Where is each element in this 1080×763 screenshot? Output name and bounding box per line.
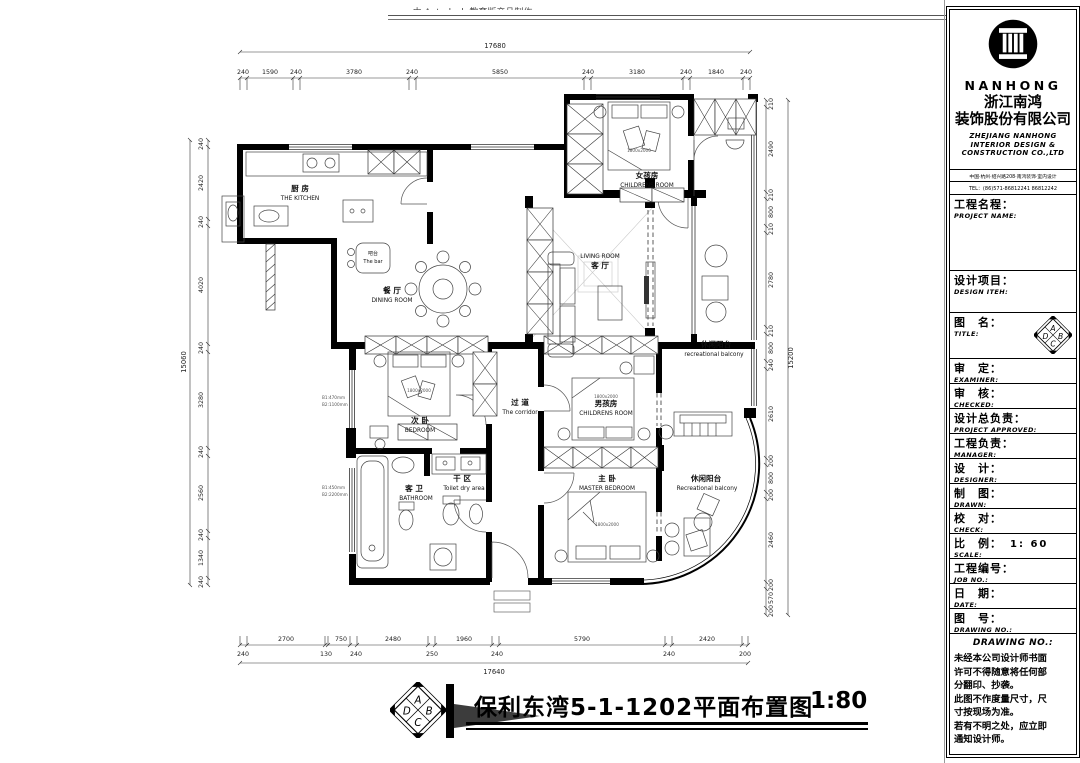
svg-text:B: B: [1058, 332, 1063, 341]
field-check: 校 对：CHECK:: [950, 509, 1076, 534]
field-project-name: 工程名程：PROJECT NAME:: [950, 195, 1076, 271]
dim-right: 210 2490 210 800 210 2780 210 800 240 26…: [764, 98, 795, 617]
drawing-title: 保利东湾5-1-1202平面布置图: [474, 688, 813, 722]
svg-text:240: 240: [680, 69, 692, 76]
drawing-no-notice-block: DRAWING NO.: 未经本公司设计师书面 许可不得随意将任何部 分翻印、抄…: [950, 634, 1076, 754]
svg-text:2420: 2420: [198, 175, 205, 191]
abcd-diamond-logo-small: A D B C: [1034, 316, 1072, 354]
field-title: 图 名：TITLE: A D B C: [950, 313, 1076, 359]
svg-text:休闲阳台: 休闲阳台: [700, 339, 732, 349]
piano: [674, 412, 732, 436]
svg-text:570: 570: [768, 592, 775, 604]
svg-text:1960: 1960: [456, 636, 472, 643]
stool: [705, 245, 727, 267]
svg-text:B: B: [426, 706, 433, 718]
brand-name: NANHONG: [954, 78, 1072, 93]
svg-text:B2:1100mm: B2:1100mm: [322, 402, 348, 407]
svg-text:1800x2000: 1800x2000: [594, 394, 618, 399]
svg-text:800: 800: [768, 206, 775, 218]
desk-curve: [684, 518, 710, 556]
chair: [665, 541, 679, 555]
svg-text:2560: 2560: [198, 485, 205, 501]
svg-text:THE KITCHEN: THE KITCHEN: [280, 196, 320, 202]
girls-rear-door-arc: [694, 136, 718, 160]
svg-text:2460: 2460: [768, 532, 775, 548]
svg-text:210: 210: [768, 189, 775, 201]
dresser: [370, 426, 388, 438]
svg-text:210: 210: [768, 98, 775, 110]
girls-door-arc: [658, 198, 688, 228]
doors: [401, 136, 718, 612]
balcony-top-furniture: [702, 245, 728, 322]
svg-text:2420: 2420: [699, 636, 715, 643]
wash-basin: [726, 140, 744, 149]
drawing-scale: 1:80: [810, 688, 867, 714]
company-name-en: ZHEJIANG NANHONG INTERIOR DESIGN & CONST…: [954, 132, 1072, 158]
svg-text:240: 240: [406, 69, 418, 76]
field-examiner: 审 定：EXAMINER:: [950, 359, 1076, 384]
bedroom-bed: [388, 352, 450, 416]
svg-text:240: 240: [350, 651, 362, 658]
svg-text:1800x2000: 1800x2000: [595, 522, 619, 527]
svg-text:C: C: [414, 717, 422, 729]
field-drawing-no: 图 号：DRAWING NO.:: [950, 609, 1076, 634]
svg-text:240: 240: [768, 359, 775, 371]
toilet-2: [443, 503, 459, 525]
svg-text:1340: 1340: [198, 550, 205, 566]
bar-stool: [348, 261, 355, 268]
svg-text:15060: 15060: [180, 351, 188, 373]
svg-text:干 区: 干 区: [453, 474, 471, 483]
company-address: 中国·杭州·绍兴路208·南鸿装饰·室内设计: [950, 170, 1076, 182]
svg-text:A: A: [1049, 324, 1055, 333]
dresser-stool: [375, 439, 385, 449]
scale-value: 1: 60: [1010, 539, 1048, 550]
field-job-no: 工程编号：JOB NO.:: [950, 559, 1076, 584]
svg-text:17640: 17640: [483, 668, 505, 676]
svg-text:休闲阳台: 休闲阳台: [690, 473, 722, 483]
svg-text:B1:450mm: B1:450mm: [322, 485, 345, 490]
dining-table-set: [405, 251, 481, 327]
svg-text:800: 800: [768, 342, 775, 354]
kitchen-cabinets: [368, 150, 420, 174]
svg-text:200: 200: [768, 579, 775, 591]
abcd-diamond-logo: A D B C: [390, 682, 446, 738]
svg-text:男孩房: 男孩房: [595, 398, 618, 408]
svg-text:210: 210: [768, 325, 775, 337]
svg-text:The corridor: The corridor: [501, 410, 538, 416]
svg-text:5790: 5790: [574, 636, 590, 643]
bedroom-wardrobe: [473, 352, 497, 416]
logo-bar: [446, 684, 454, 738]
floor-plan: 17680 240 1590 240 3780 240 5850 240 318…: [0, 0, 945, 763]
rear-planter: [694, 99, 756, 135]
drawing-page: 由 Autodesk 教育版产品制作 17680 240 1590 240 37…: [0, 0, 1080, 763]
svg-text:BEDROOM: BEDROOM: [405, 428, 435, 434]
nightstand: [555, 550, 567, 562]
svg-text:BATHROOM: BATHROOM: [399, 496, 433, 502]
dim-top: 17680 240 1590 240 3780 240 5850 240 318…: [237, 42, 752, 90]
tv: [644, 276, 649, 304]
svg-text:3780: 3780: [346, 69, 362, 76]
svg-text:240: 240: [491, 651, 503, 658]
nightstand: [452, 355, 464, 367]
svg-text:2610: 2610: [768, 406, 775, 422]
company-tel: TEL：(86)571-86812241 86812242: [950, 182, 1076, 195]
title-block-panel: NANHONG 浙江南鸿 装饰股份有限公司 ZHEJIANG NANHONG I…: [946, 6, 1080, 758]
company-logo-block: NANHONG 浙江南鸿 装饰股份有限公司 ZHEJIANG NANHONG I…: [950, 10, 1076, 170]
svg-text:MASTER BEDROOM: MASTER BEDROOM: [579, 486, 635, 492]
nightstand: [374, 355, 386, 367]
master-bed: [568, 492, 646, 562]
svg-text:240: 240: [237, 69, 249, 76]
svg-text:200: 200: [739, 651, 751, 658]
svg-text:240: 240: [198, 342, 205, 354]
toilet-tank: [399, 502, 414, 510]
corridor-closet-b: [544, 336, 658, 354]
boys-door-arc: [544, 385, 570, 411]
entry-door-arc: [492, 542, 528, 578]
svg-text:B2:2200mm: B2:2200mm: [322, 492, 348, 497]
living-storage: [527, 208, 553, 334]
svg-text:240: 240: [198, 576, 205, 588]
basin: [392, 457, 414, 473]
svg-text:240: 240: [582, 69, 594, 76]
svg-text:240: 240: [198, 529, 205, 541]
svg-text:200: 200: [768, 489, 775, 501]
svg-text:Toilet dry area: Toilet dry area: [442, 486, 485, 492]
master-closet: [544, 447, 658, 468]
dim-left: 240 2420 240 4020 240 3280 240 2560 240 …: [180, 138, 210, 588]
desk: [634, 356, 654, 374]
svg-text:2480: 2480: [385, 636, 401, 643]
windows: [289, 95, 757, 584]
svg-text:厨 房: 厨 房: [291, 183, 309, 193]
drawing-no-header: DRAWING NO.:: [954, 638, 1072, 648]
svg-text:1840: 1840: [708, 69, 724, 76]
svg-text:B1:470mm: B1:470mm: [322, 395, 345, 400]
svg-text:CHILDRENS ROOM: CHILDRENS ROOM: [579, 411, 633, 417]
svg-text:210: 210: [768, 223, 775, 235]
svg-text:餐 厅: 餐 厅: [382, 285, 401, 295]
svg-text:次 卧: 次 卧: [411, 415, 429, 425]
field-manager: 工程负责：MANAGER:: [950, 434, 1076, 459]
svg-text:CHILDRENS ROOM: CHILDRENS ROOM: [620, 183, 674, 189]
svg-text:240: 240: [198, 138, 205, 150]
svg-text:200: 200: [768, 605, 775, 617]
svg-text:3180: 3180: [629, 69, 645, 76]
walls: [237, 94, 759, 585]
svg-text:2700: 2700: [278, 636, 294, 643]
svg-text:女孩房: 女孩房: [636, 170, 659, 180]
master-furniture: [555, 492, 659, 562]
svg-text:800: 800: [768, 472, 775, 484]
company-name-zh: 浙江南鸿 装饰股份有限公司: [954, 95, 1072, 129]
svg-text:200: 200: [768, 455, 775, 467]
field-date: 日 期：DATE:: [950, 584, 1076, 609]
svg-text:主 卧: 主 卧: [598, 473, 616, 483]
svg-text:Recreational balcony: Recreational balcony: [677, 486, 738, 492]
stove: [303, 154, 339, 172]
svg-text:The bar: The bar: [362, 259, 383, 265]
field-design-item: 设计项目：DESIGN ITEH:: [950, 271, 1076, 313]
svg-text:客 卫: 客 卫: [405, 483, 423, 493]
field-checked: 审 核：CHECKED:: [950, 384, 1076, 409]
svg-text:250: 250: [426, 651, 438, 658]
drawing-title-bar: A D B C 保利东湾5-1-1202平面布置图 1:80: [378, 680, 898, 746]
boys-bed: [572, 378, 634, 440]
svg-text:recreational balcony: recreational balcony: [684, 352, 744, 358]
kitchen-sink: [259, 210, 279, 222]
field-designer: 设 计：DESIGNER:: [950, 459, 1076, 484]
svg-text:吧台: 吧台: [368, 250, 378, 257]
svg-text:D: D: [1042, 332, 1048, 341]
curved-wall: [636, 418, 759, 584]
toilet: [399, 510, 413, 530]
corridor-closet-a: [365, 336, 488, 354]
svg-text:240: 240: [290, 69, 302, 76]
balcony-bottom-furniture: [659, 412, 732, 556]
svg-text:1590: 1590: [262, 69, 278, 76]
sheet-divider: [944, 0, 945, 763]
dim-bottom: 240 2700 130 750 240 2480 250 1960 240 5…: [237, 636, 751, 676]
stool: [706, 302, 726, 322]
bathroom-fixtures: [357, 454, 486, 570]
chair: [665, 523, 679, 537]
nightstand: [672, 106, 684, 118]
column-logo-icon: [985, 16, 1041, 72]
chair: [620, 362, 632, 374]
field-drawn: 制 图：DRAWN:: [950, 484, 1076, 509]
svg-text:1800x2000: 1800x2000: [627, 148, 651, 153]
kitchen-door-arc: [401, 178, 427, 204]
side-table: [702, 276, 728, 300]
svg-text:3280: 3280: [198, 392, 205, 408]
field-scale: 比 例：1: 60 SCALE:: [950, 534, 1076, 559]
entry-screen: [266, 244, 275, 310]
svg-text:750: 750: [335, 636, 347, 643]
svg-text:4020: 4020: [198, 277, 205, 293]
bidet: [470, 504, 483, 524]
svg-text:2780: 2780: [768, 272, 775, 288]
svg-text:D: D: [403, 706, 411, 718]
bar-stool: [348, 249, 355, 256]
svg-text:17680: 17680: [484, 42, 506, 50]
svg-text:1800x2000: 1800x2000: [407, 388, 431, 393]
master-door-arc: [544, 473, 574, 503]
svg-text:240: 240: [198, 216, 205, 228]
svg-text:5850: 5850: [492, 69, 508, 76]
svg-text:LIVING ROOM: LIVING ROOM: [580, 254, 619, 260]
svg-text:C: C: [1050, 339, 1056, 348]
nightstand: [558, 428, 570, 440]
svg-text:2490: 2490: [768, 141, 775, 157]
girls-bench: [620, 188, 684, 202]
title-underline-2: [466, 728, 868, 730]
svg-text:A: A: [413, 694, 421, 706]
svg-text:240: 240: [740, 69, 752, 76]
bar-counter: [348, 243, 391, 273]
svg-text:240: 240: [663, 651, 675, 658]
title-underline: [466, 722, 868, 725]
svg-text:240: 240: [237, 651, 249, 658]
svg-text:15200: 15200: [787, 347, 795, 369]
svg-text:130: 130: [320, 651, 332, 658]
nightstand: [638, 428, 650, 440]
svg-text:客 厅: 客 厅: [591, 260, 609, 270]
svg-text:过 道: 过 道: [511, 397, 529, 407]
svg-text:240: 240: [198, 446, 205, 458]
svg-text:DINING ROOM: DINING ROOM: [371, 298, 412, 304]
field-project-approved: 设计总负责：PROJECT APPROVED:: [950, 409, 1076, 434]
kitchen-island: [343, 200, 373, 222]
girls-bed: [608, 102, 670, 170]
autodesk-watermark: 由 Autodesk 教育版产品制作: [0, 0, 945, 10]
